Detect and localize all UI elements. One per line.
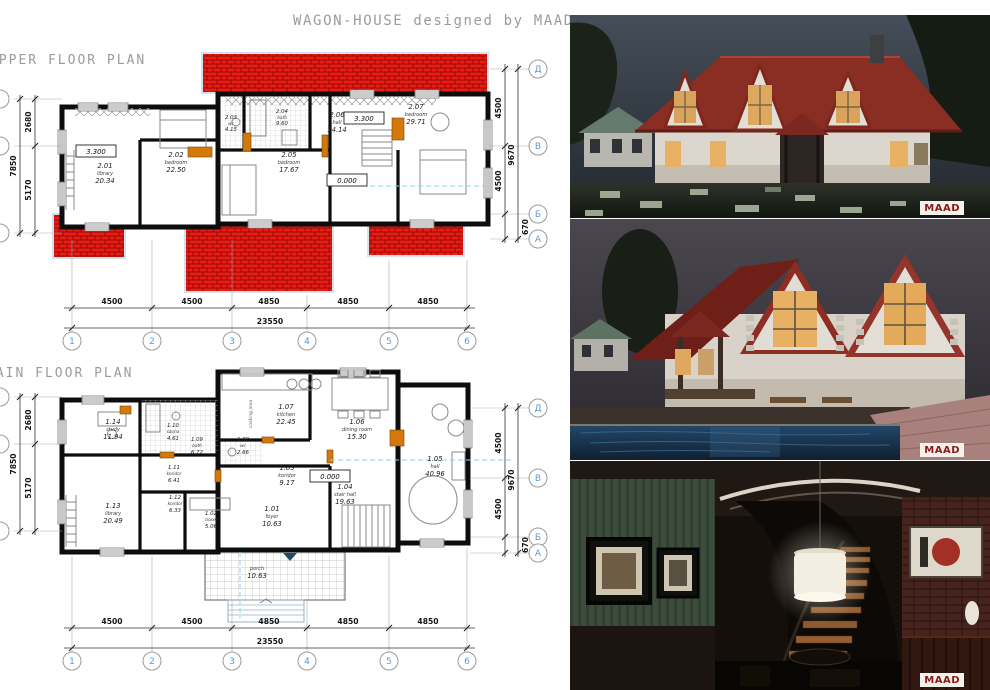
svg-text:670: 670 <box>521 537 530 553</box>
svg-text:2.06: 2.06 <box>329 111 345 119</box>
svg-text:5: 5 <box>386 657 392 667</box>
room-label-2-01: 2.01 library 20.34 <box>95 162 114 185</box>
svg-text:1.06: 1.06 <box>349 418 365 426</box>
svg-text:1: 1 <box>69 657 75 667</box>
svg-text:29.71: 29.71 <box>406 118 425 126</box>
svg-text:wc: wc <box>240 443 246 448</box>
svg-text:7850: 7850 <box>9 155 18 176</box>
main-level-marks: 0.000 <box>310 470 350 482</box>
room-label-1-12: 1.12 koridor 6.33 <box>168 495 183 514</box>
cooking-area-annotation: cooking area <box>248 399 254 428</box>
svg-text:bath: bath <box>277 115 287 120</box>
svg-text:4500: 4500 <box>494 498 503 519</box>
svg-text:2.07: 2.07 <box>408 103 424 111</box>
svg-text:2: 2 <box>149 337 155 347</box>
svg-text:1.14: 1.14 <box>105 418 120 426</box>
svg-text:0.000: 0.000 <box>320 473 339 481</box>
svg-text:3.300: 3.300 <box>86 148 105 156</box>
maad-logo: MAAD <box>920 673 964 687</box>
svg-text:А: А <box>535 235 542 245</box>
svg-text:3: 3 <box>229 337 235 347</box>
svg-text:9.17: 9.17 <box>279 479 295 487</box>
svg-text:6: 6 <box>464 657 470 667</box>
room-label-1-14: 1.14 study 11.94 <box>103 418 122 441</box>
svg-text:3.300: 3.300 <box>354 115 373 123</box>
framed-pictures <box>588 539 698 603</box>
svg-text:wc: wc <box>228 121 234 126</box>
svg-text:4.61: 4.61 <box>167 436 179 442</box>
svg-text:4850: 4850 <box>258 617 279 626</box>
svg-text:23550: 23550 <box>257 637 283 646</box>
svg-text:0.000: 0.000 <box>337 177 356 185</box>
render-exterior-front-image <box>570 15 990 218</box>
svg-text:1.01: 1.01 <box>264 505 279 513</box>
svg-text:2: 2 <box>149 657 155 667</box>
render-exterior-side: MAAD <box>570 219 990 460</box>
main-floor-plan-drawing: MAIN FLOOR PLAN <box>0 358 570 690</box>
render-interior-hall-image <box>570 461 990 690</box>
svg-text:4500: 4500 <box>181 297 202 306</box>
svg-text:4500: 4500 <box>101 297 122 306</box>
svg-text:4850: 4850 <box>258 297 279 306</box>
svg-text:Д: Д <box>534 404 541 414</box>
svg-text:4: 4 <box>304 657 310 667</box>
pendant-lamp <box>794 548 846 602</box>
svg-text:2680: 2680 <box>24 111 33 132</box>
svg-text:9670: 9670 <box>507 469 516 490</box>
svg-text:3: 3 <box>229 657 235 667</box>
room-label-1-02: 1.02 closet 5.06 <box>205 511 218 530</box>
svg-text:14.14: 14.14 <box>327 126 346 134</box>
porch <box>205 552 345 622</box>
svg-text:4850: 4850 <box>337 297 358 306</box>
svg-text:4500: 4500 <box>494 97 503 118</box>
svg-text:15.30: 15.30 <box>347 433 366 441</box>
svg-text:4850: 4850 <box>337 617 358 626</box>
svg-text:6.41: 6.41 <box>168 478 180 484</box>
svg-text:4850: 4850 <box>417 297 438 306</box>
svg-text:bath: bath <box>192 443 202 448</box>
svg-text:7850: 7850 <box>9 453 18 474</box>
svg-text:Д: Д <box>534 65 541 75</box>
render-interior-hall: MAAD <box>570 461 990 690</box>
svg-text:2.05: 2.05 <box>281 151 296 159</box>
svg-text:10.63: 10.63 <box>247 572 266 580</box>
svg-text:22.45: 22.45 <box>276 418 295 426</box>
svg-text:20.49: 20.49 <box>103 517 122 525</box>
upper-floor-plan-drawing: UPPER FLOOR PLAN <box>0 45 570 360</box>
sheet-title: WAGON-HOUSE designed by MAAD <box>293 13 593 29</box>
svg-text:1.03: 1.03 <box>279 464 294 472</box>
svg-text:2.02: 2.02 <box>168 151 183 159</box>
maad-logo: MAAD <box>920 443 964 457</box>
room-label-1-09: 1.09 bath 6.72 <box>191 437 204 456</box>
presentation-sheet: WAGON-HOUSE designed by MAAD UPPER FLOOR… <box>0 0 990 690</box>
svg-text:koridor: koridor <box>168 501 183 506</box>
svg-text:19.63: 19.63 <box>335 498 354 506</box>
room-label-1-10: 1.10 sauna 4.61 <box>167 423 180 442</box>
svg-text:6: 6 <box>464 337 470 347</box>
svg-text:23550: 23550 <box>257 317 283 326</box>
svg-text:17.67: 17.67 <box>279 166 299 174</box>
svg-text:40.96: 40.96 <box>425 470 445 478</box>
svg-text:670: 670 <box>521 219 530 235</box>
svg-text:22.50: 22.50 <box>166 166 185 174</box>
svg-text:4500: 4500 <box>494 432 503 453</box>
main-dims-left: 2680 7850 5170 <box>0 388 62 540</box>
svg-text:В: В <box>535 142 541 152</box>
svg-text:1.05: 1.05 <box>427 455 442 463</box>
svg-text:closet: closet <box>205 517 218 522</box>
svg-text:4.15: 4.15 <box>225 127 238 133</box>
svg-text:4500: 4500 <box>181 617 202 626</box>
svg-text:9.60: 9.60 <box>276 121 289 127</box>
svg-text:2.66: 2.66 <box>237 450 250 456</box>
svg-text:sauna: sauna <box>167 429 180 434</box>
svg-text:4500: 4500 <box>494 170 503 191</box>
svg-text:1.04: 1.04 <box>337 483 352 491</box>
maad-logo: MAAD <box>920 201 964 215</box>
svg-text:6.33: 6.33 <box>169 508 182 514</box>
upper-plan-title: UPPER FLOOR PLAN <box>0 53 146 68</box>
room-label-1-11: 1.11 koridor 6.41 <box>167 465 182 484</box>
room-label-1-03: 1.03 koridor 9.17 <box>278 464 297 487</box>
svg-text:Б: Б <box>535 210 541 220</box>
svg-text:А: А <box>535 549 542 559</box>
svg-text:1.13: 1.13 <box>105 502 120 510</box>
svg-text:2.01: 2.01 <box>97 162 112 170</box>
svg-text:11.94: 11.94 <box>103 433 122 441</box>
room-label-1-13: 1.13 library 20.49 <box>103 502 122 525</box>
main-dims-right: 4500 9670 4500 670 Д В Б А <box>470 399 547 562</box>
brick-wall-artwork <box>910 527 982 577</box>
vase <box>965 601 979 625</box>
svg-text:2680: 2680 <box>24 409 33 430</box>
upper-dims-right: 4500 9670 4500 670 Д В Б А <box>490 60 547 248</box>
svg-text:4850: 4850 <box>417 617 438 626</box>
main-plan-title: MAIN FLOOR PLAN <box>0 366 133 381</box>
room-label-porch: porch 10.63 <box>247 566 266 580</box>
svg-text:10.63: 10.63 <box>262 520 281 528</box>
svg-text:20.34: 20.34 <box>95 177 114 185</box>
svg-text:4: 4 <box>304 337 310 347</box>
render-exterior-side-image <box>570 219 990 460</box>
svg-text:1: 1 <box>69 337 75 347</box>
svg-text:5: 5 <box>386 337 392 347</box>
svg-text:5170: 5170 <box>24 179 33 200</box>
svg-text:В: В <box>535 474 541 484</box>
svg-text:4500: 4500 <box>101 617 122 626</box>
svg-text:9670: 9670 <box>507 144 516 165</box>
svg-text:5.06: 5.06 <box>205 524 218 530</box>
room-label-1-07: 1.07 kitchen 22.45 <box>276 403 295 426</box>
svg-text:1.07: 1.07 <box>278 403 294 411</box>
svg-text:Б: Б <box>535 533 541 543</box>
room-label-2-04: 2.04 bath 9.60 <box>276 109 289 127</box>
render-exterior-front: MAAD <box>570 15 990 218</box>
svg-text:6.72: 6.72 <box>191 450 204 456</box>
svg-text:5170: 5170 <box>24 477 33 498</box>
svg-text:koridor: koridor <box>167 471 182 476</box>
